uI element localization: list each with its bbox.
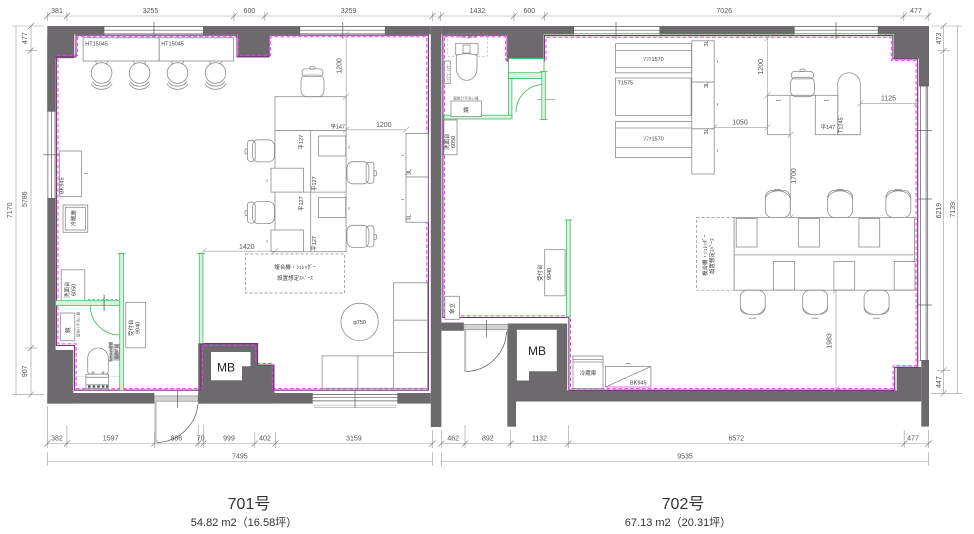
svg-text:傘立: 傘立 bbox=[448, 302, 456, 314]
svg-text:1597: 1597 bbox=[103, 436, 119, 443]
svg-text:3255: 3255 bbox=[143, 8, 159, 15]
svg-text:T1245: T1245 bbox=[839, 117, 845, 133]
svg-text:907: 907 bbox=[22, 365, 29, 377]
svg-text:6050: 6050 bbox=[72, 284, 78, 296]
svg-text:702号: 702号 bbox=[662, 495, 705, 513]
svg-text:477: 477 bbox=[910, 8, 922, 15]
svg-text:冷蔵庫: 冷蔵庫 bbox=[70, 209, 78, 226]
svg-text:1125: 1125 bbox=[881, 96, 896, 103]
svg-text:473: 473 bbox=[936, 32, 943, 44]
svg-text:壁掛け手洗い器: 壁掛け手洗い器 bbox=[453, 96, 479, 101]
svg-text:T1575: T1575 bbox=[618, 81, 634, 87]
svg-text:操作ﾊﾟﾈﾙ: 操作ﾊﾟﾈﾙ bbox=[114, 344, 119, 359]
svg-text:鏡: 鏡 bbox=[64, 327, 72, 333]
svg-text:設置想定ｽﾍﾟｰｽ: 設置想定ｽﾍﾟｰｽ bbox=[277, 274, 313, 282]
svg-text:平147: 平147 bbox=[821, 124, 836, 131]
svg-text:3L: 3L bbox=[407, 214, 413, 220]
svg-text:平127: 平127 bbox=[298, 135, 305, 150]
svg-text:3159: 3159 bbox=[346, 436, 362, 443]
svg-text:鏡: 鏡 bbox=[463, 106, 469, 114]
svg-text:3L: 3L bbox=[407, 169, 413, 175]
svg-text:9040: 9040 bbox=[547, 268, 553, 280]
svg-text:設置想定ｽﾍﾟｰｽ: 設置想定ｽﾍﾟｰｽ bbox=[708, 238, 716, 274]
svg-text:1200: 1200 bbox=[376, 122, 392, 129]
svg-text:MB: MB bbox=[528, 344, 546, 358]
svg-text:BK945: BK945 bbox=[60, 177, 66, 194]
svg-text:1432: 1432 bbox=[470, 8, 486, 15]
svg-text:701号: 701号 bbox=[228, 495, 271, 513]
svg-text:67.13 m2（20.31坪）: 67.13 m2（20.31坪） bbox=[625, 516, 731, 529]
svg-text:3L: 3L bbox=[704, 82, 710, 88]
svg-text:600: 600 bbox=[244, 8, 256, 15]
svg-text:1132: 1132 bbox=[532, 436, 547, 443]
svg-text:1200: 1200 bbox=[758, 59, 765, 75]
svg-text:5786: 5786 bbox=[22, 191, 29, 207]
svg-text:7026: 7026 bbox=[716, 8, 732, 15]
svg-text:600: 600 bbox=[523, 8, 535, 15]
svg-text:54.82 m2（16.58坪）: 54.82 m2（16.58坪） bbox=[191, 516, 297, 529]
svg-text:壁掛け手洗い器: 壁掛け手洗い器 bbox=[76, 311, 81, 337]
svg-text:447: 447 bbox=[936, 376, 943, 388]
svg-text:382: 382 bbox=[51, 436, 63, 443]
svg-text:W.C幅800: W.C幅800 bbox=[460, 34, 476, 39]
svg-text:381: 381 bbox=[51, 8, 63, 15]
svg-text:ｳｫｼｭﾚｯﾄ付き: ｳｫｼｭﾚｯﾄ付き bbox=[108, 341, 113, 361]
svg-text:70: 70 bbox=[197, 436, 205, 443]
svg-text:洗面台: 洗面台 bbox=[63, 281, 71, 298]
svg-text:複合機・ｼｭﾚｯﾀﾞｰ: 複合機・ｼｭﾚｯﾀﾞｰ bbox=[274, 263, 316, 271]
svg-text:平127: 平127 bbox=[298, 196, 305, 211]
svg-text:7139: 7139 bbox=[950, 202, 957, 218]
svg-text:平127: 平127 bbox=[311, 176, 318, 191]
svg-text:3L: 3L bbox=[704, 40, 710, 46]
svg-text:平147: 平147 bbox=[330, 124, 345, 131]
svg-text:6219: 6219 bbox=[936, 203, 943, 219]
svg-text:6572: 6572 bbox=[729, 436, 745, 443]
svg-text:1983: 1983 bbox=[827, 333, 834, 349]
svg-text:HT15045: HT15045 bbox=[161, 42, 184, 48]
svg-text:462: 462 bbox=[447, 436, 459, 443]
svg-text:9040: 9040 bbox=[136, 322, 142, 334]
svg-text:402: 402 bbox=[259, 436, 271, 443]
svg-text:φ750: φ750 bbox=[353, 320, 366, 326]
svg-text:冷蔵庫: 冷蔵庫 bbox=[580, 369, 597, 377]
svg-text:7495: 7495 bbox=[232, 454, 248, 461]
svg-text:3259: 3259 bbox=[341, 8, 357, 15]
svg-text:1200: 1200 bbox=[337, 58, 344, 74]
svg-text:3L: 3L bbox=[704, 128, 710, 134]
svg-text:ｿﾌｧ1570: ｿﾌｧ1570 bbox=[643, 56, 664, 63]
svg-text:複合機・ｼｭﾚｯﾀﾞｰ: 複合機・ｼｭﾚｯﾀﾞｰ bbox=[701, 234, 709, 276]
svg-text:1050: 1050 bbox=[732, 120, 748, 127]
svg-text:6050: 6050 bbox=[451, 136, 457, 148]
svg-text:ｿﾌｧ1570: ｿﾌｧ1570 bbox=[643, 136, 664, 143]
svg-text:7170: 7170 bbox=[7, 202, 14, 218]
svg-text:892: 892 bbox=[482, 436, 494, 443]
svg-text:平127: 平127 bbox=[311, 236, 318, 251]
svg-text:MB: MB bbox=[217, 361, 235, 375]
svg-text:1700: 1700 bbox=[791, 168, 798, 184]
svg-text:999: 999 bbox=[223, 436, 235, 443]
svg-text:洗面台: 洗面台 bbox=[443, 133, 451, 150]
svg-text:1420: 1420 bbox=[239, 244, 255, 251]
svg-text:受付台: 受付台 bbox=[536, 264, 544, 281]
svg-text:477: 477 bbox=[907, 436, 919, 443]
svg-text:BK945: BK945 bbox=[630, 381, 647, 387]
svg-text:477: 477 bbox=[22, 32, 29, 44]
svg-text:9535: 9535 bbox=[677, 454, 693, 461]
svg-text:ｼｬﾜｰﾄﾞﾚｯｻｰ: ｼｬﾜｰﾄﾞﾚｯｻｰ bbox=[445, 64, 450, 82]
svg-text:HT15045: HT15045 bbox=[85, 42, 108, 48]
svg-text:受付台: 受付台 bbox=[127, 319, 135, 336]
